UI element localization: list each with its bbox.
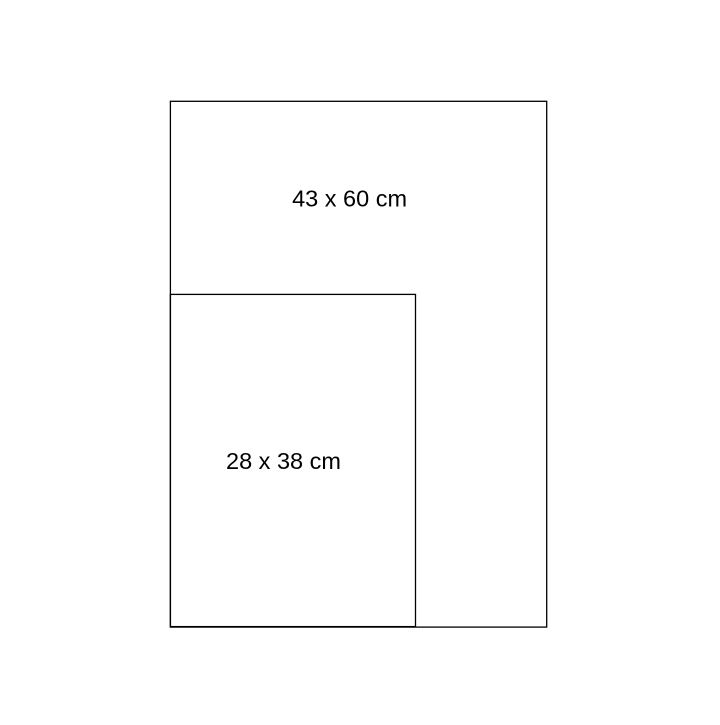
svg-text:28 x 38 cm: 28 x 38 cm <box>226 448 341 474</box>
svg-text:43 x 60 cm: 43 x 60 cm <box>292 186 407 212</box>
